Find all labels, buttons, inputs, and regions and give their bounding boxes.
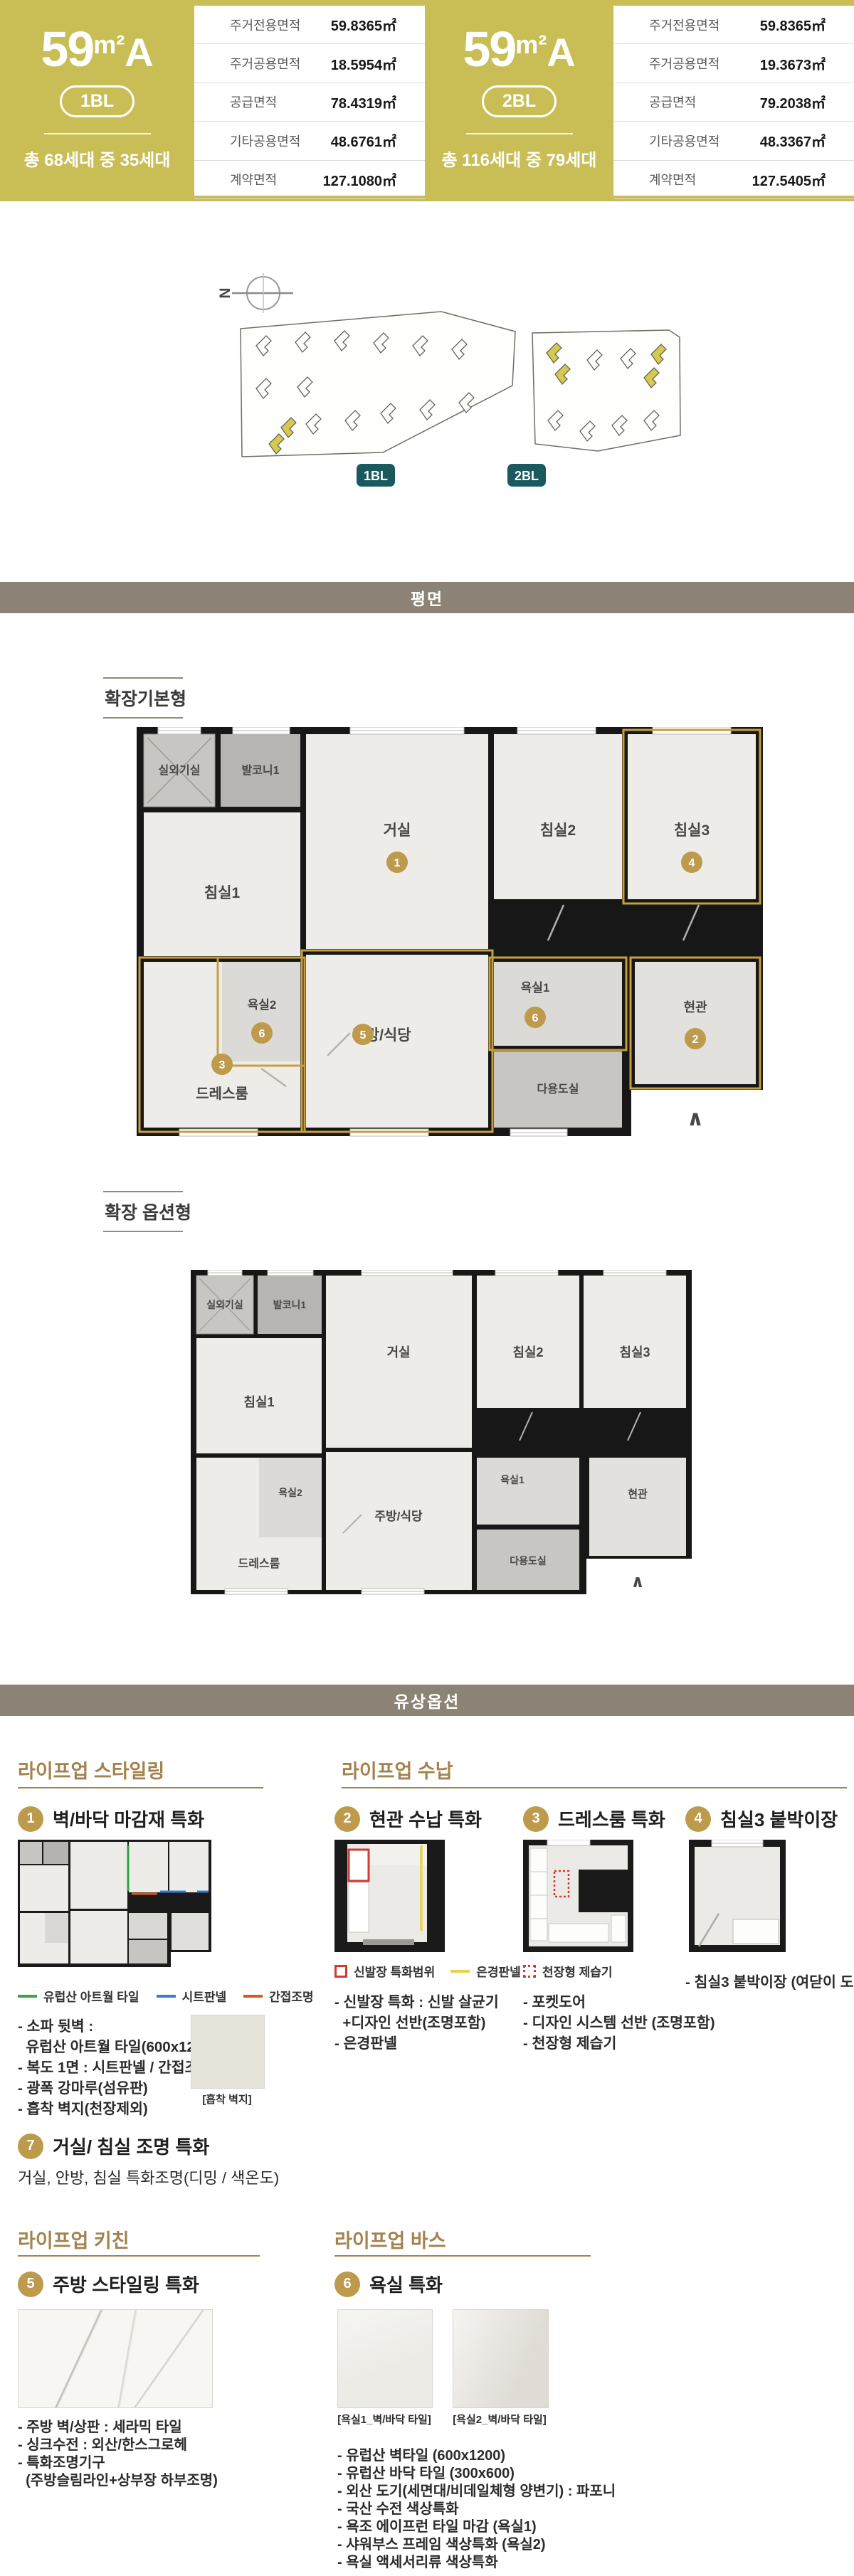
table-row: 공급면적79.2038㎡: [613, 83, 854, 122]
option-2-mini-plan: [334, 1840, 445, 1952]
group-heading-bath: 라이프업 바스: [334, 2225, 446, 2253]
svg-text:욕실2: 욕실2: [278, 1487, 302, 1498]
option-number-badge: 2: [334, 1806, 360, 1832]
svg-text:침실1: 침실1: [243, 1395, 274, 1409]
option-4-title: 4 침실3 붙박이장: [685, 1806, 838, 1832]
svg-text:침실3: 침실3: [619, 1345, 650, 1359]
svg-text:5: 5: [360, 1029, 367, 1041]
option-number-badge: 6: [334, 2272, 360, 2297]
bath1-tile-swatch: [337, 2309, 433, 2408]
option-number-badge: 3: [523, 1806, 549, 1832]
entry-arrow: ∧: [631, 1572, 645, 1591]
option-5-bullets: - 주방 벽/상판 : 세라믹 타일 - 싱크수전 : 외산/한스그로헤 - 특…: [18, 2419, 218, 2490]
section-bar-plan: 평면: [0, 582, 854, 613]
option-title-text: 거실/ 침실 조명 특화: [53, 2133, 209, 2159]
plan-option-label: 확장 옵션형: [103, 1192, 193, 1231]
table-row: 기타공용면적48.6761㎡: [194, 122, 425, 160]
svg-text:실외기실: 실외기실: [206, 1299, 243, 1310]
legend-item: 간접조명: [243, 1987, 314, 2005]
unit-card-1bl: 59m²A 1BL 총 68세대 중 35세대: [0, 0, 194, 171]
table-row: 계약면적127.1080㎡: [194, 161, 425, 199]
rule-bottom: [103, 1231, 183, 1232]
svg-text:욕실2: 욕실2: [248, 998, 277, 1012]
option-number-badge: 1: [18, 1806, 43, 1832]
compass-icon: N: [217, 273, 293, 313]
wallpaper-swatch-caption: [흡착 벽지]: [180, 2092, 274, 2106]
area-table-1bl: 주거전용면적59.8365㎡ 주거공용면적18.5954㎡ 공급면적78.431…: [194, 6, 425, 196]
group-rule: [334, 2255, 591, 2257]
svg-text:다용도실: 다용도실: [537, 1083, 579, 1096]
svg-text:2BL: 2BL: [515, 469, 539, 483]
option-2-image: [334, 1840, 445, 1956]
option-1-legend: 유럽산 아트월 타일 시트판넬 간접조명: [18, 1987, 314, 2005]
site-block-badge-1bl: 1BL: [357, 464, 395, 487]
floorplan-option: 실외기실 발코니1 거실 침실2 침실3 침실1 욕실2 드레스룸 주방/식당 …: [191, 1270, 692, 1601]
floorplan-basic-drawing: 실외기실 발코니1 거실 침실2 침실3 침실1 욕실2 드레스룸 주방/식당 …: [137, 727, 763, 1140]
unit-summary-band: 59m²A 1BL 총 68세대 중 35세대 주거전용면적59.8365㎡ 주…: [0, 0, 854, 201]
svg-text:6: 6: [259, 1028, 265, 1040]
option-3-title: 3 드레스룸 특화: [523, 1806, 665, 1832]
svg-text:드레스룸: 드레스룸: [238, 1557, 280, 1570]
group-rule: [18, 1787, 263, 1788]
svg-text:1BL: 1BL: [364, 469, 388, 483]
svg-text:욕실1: 욕실1: [500, 1474, 524, 1485]
wallpaper-swatch: [191, 2015, 265, 2089]
table-row: 기타공용면적48.3367㎡: [613, 122, 854, 160]
option-1-title: 1 벽/바닥 마감재 특화: [18, 1806, 204, 1832]
legend-item: 은경판넬: [450, 1962, 521, 1980]
option-3-mini-plan: [523, 1840, 633, 1952]
site-plan: N 1BL: [213, 265, 683, 496]
option-7-desc: 거실, 안방, 침실 특화조명(디밍 / 색온도): [18, 2166, 279, 2188]
household-count: 총 68세대 중 35세대: [24, 146, 171, 171]
option-6-title: 6 욕실 특화: [334, 2271, 443, 2297]
unit-card-2bl: 59m²A 2BL 총 116세대 중 79세대: [425, 0, 613, 171]
svg-text:실외기실: 실외기실: [159, 764, 201, 777]
group-heading-styling: 라이프업 스타일링: [18, 1756, 164, 1783]
household-count: 총 116세대 중 79세대: [442, 146, 597, 171]
legend-item: 천장형 제습기: [523, 1962, 613, 1980]
option-4-mini-plan: [689, 1840, 786, 1952]
svg-text:3: 3: [219, 1059, 226, 1071]
option-1-mini-plan: [18, 1840, 211, 1976]
option-5-title: 5 주방 스타일링 특화: [18, 2271, 199, 2297]
table-row: 공급면적78.4319㎡: [194, 83, 425, 122]
option-title-text: 현관 수납 특화: [369, 1806, 482, 1832]
table-row: 주거공용면적18.5954㎡: [194, 44, 425, 83]
option-number-badge: 4: [685, 1806, 711, 1832]
plan-option-label-block: 확장 옵션형: [103, 1191, 193, 1232]
bath2-tile-caption: [욕실2_벽/바닥 타일]: [443, 2412, 557, 2427]
option-3-legend: 천장형 제습기: [523, 1962, 613, 1980]
option-3-bullets: - 포켓도어 - 디자인 시스템 선반 (조명포함) - 천장형 제습기: [523, 1992, 715, 2054]
orange-line-swatch: [243, 1995, 263, 1998]
option-4-bullets: - 침실3 붙박이장 (여닫이 도어): [685, 1972, 854, 1993]
svg-text:2: 2: [692, 1034, 699, 1046]
svg-text:침실3: 침실3: [674, 822, 710, 839]
plan-basic-label: 확장기본형: [103, 679, 188, 717]
svg-text:다용도실: 다용도실: [510, 1555, 547, 1567]
option-2-legend: 신발장 특화범위 은경판넬: [334, 1962, 521, 1980]
option-title-text: 욕실 특화: [369, 2271, 443, 2297]
svg-text:1: 1: [394, 857, 401, 869]
green-line-swatch: [18, 1995, 37, 1998]
option-number-badge: 7: [18, 2134, 43, 2159]
option-title-text: 드레스룸 특화: [558, 1806, 665, 1832]
site-parcel-1bl: [241, 312, 515, 457]
svg-text:드레스룸: 드레스룸: [196, 1086, 248, 1102]
divider: [466, 133, 573, 134]
site-plan-drawing: N 1BL: [213, 265, 683, 496]
floorplan-basic: 실외기실 발코니1 거실 침실2 침실3 침실1 욕실2 드레스룸 주방/식당 …: [137, 727, 763, 1143]
svg-text:발코니1: 발코니1: [241, 764, 279, 777]
legend-item: 시트판넬: [157, 1987, 227, 2005]
svg-text:침실2: 침실2: [540, 822, 576, 839]
option-6-bullets: - 유럽산 벽타일 (600x1200) - 유럽산 바닥 타일 (300x60…: [337, 2447, 616, 2572]
rule-bottom: [103, 717, 183, 719]
svg-text:욕실1: 욕실1: [521, 981, 550, 995]
group-heading-storage: 라이프업 수납: [342, 1756, 453, 1783]
svg-text:거실: 거실: [384, 822, 411, 839]
option-7-title: 7 거실/ 침실 조명 특화: [18, 2133, 209, 2159]
option-title-text: 벽/바닥 마감재 특화: [53, 1806, 204, 1832]
option-3-image: [523, 1840, 633, 1956]
blue-line-swatch: [157, 1995, 176, 1998]
yellow-line-swatch: [450, 1970, 470, 1973]
block-pill: 1BL: [60, 85, 135, 117]
option-2-title: 2 현관 수납 특화: [334, 1806, 482, 1832]
group-heading-kitchen: 라이프업 키친: [18, 2225, 130, 2253]
area-table-2bl: 주거전용면적59.8365㎡ 주거공용면적19.3673㎡ 공급면적79.203…: [613, 6, 854, 196]
section-bar-paid-option: 유상옵션: [0, 1685, 854, 1716]
option-title-text: 침실3 붙박이장: [720, 1806, 838, 1832]
floorplan-option-drawing: 실외기실 발코니1 거실 침실2 침실3 침실1 욕실2 드레스룸 주방/식당 …: [191, 1270, 692, 1597]
kitchen-ceramic-swatch: [18, 2309, 213, 2408]
option-2-bullets: - 신발장 특화 : 신발 살균기 +디자인 선반(조명포함) - 은경판넬: [334, 1992, 499, 2054]
svg-text:현관: 현관: [683, 1000, 707, 1014]
svg-text:발코니1: 발코니1: [273, 1299, 307, 1310]
option-title-text: 주방 스타일링 특화: [53, 2271, 199, 2297]
site-block-badge-2bl: 2BL: [507, 464, 546, 487]
unit-size-title: 59m²A: [463, 24, 575, 74]
svg-text:4: 4: [689, 857, 695, 869]
bath1-tile-caption: [욕실1_벽/바닥 타일]: [327, 2412, 441, 2427]
svg-text:거실: 거실: [386, 1345, 410, 1359]
group-rule: [18, 2255, 260, 2257]
divider: [44, 133, 151, 134]
block-pill: 2BL: [482, 85, 557, 117]
table-row: 주거전용면적59.8365㎡: [194, 6, 425, 44]
table-row: 계약면적127.5405㎡: [613, 161, 854, 199]
svg-text:주방/식당: 주방/식당: [374, 1510, 423, 1523]
red-outline-swatch: [334, 1965, 347, 1978]
red-dotted-swatch: [523, 1965, 536, 1978]
svg-text:6: 6: [532, 1012, 539, 1024]
group-rule: [342, 1787, 847, 1788]
option-1-plan-image: [18, 1840, 211, 1980]
bath2-tile-swatch: [453, 2309, 549, 2408]
legend-item: 유럽산 아트월 타일: [18, 1987, 139, 2005]
svg-text:N: N: [217, 287, 233, 298]
table-row: 주거공용면적19.3673㎡: [613, 44, 854, 83]
legend-item: 신발장 특화범위: [334, 1962, 435, 1980]
svg-text:침실1: 침실1: [204, 885, 241, 901]
entry-arrow: ∧: [687, 1107, 704, 1130]
svg-text:현관: 현관: [628, 1488, 648, 1500]
table-row: 주거전용면적59.8365㎡: [613, 6, 854, 44]
unit-size-title: 59m²A: [41, 24, 153, 74]
svg-text:침실2: 침실2: [512, 1345, 543, 1359]
plan-basic-label-block: 확장기본형: [103, 677, 188, 719]
option-4-image: [689, 1840, 786, 1956]
option-number-badge: 5: [18, 2272, 43, 2297]
